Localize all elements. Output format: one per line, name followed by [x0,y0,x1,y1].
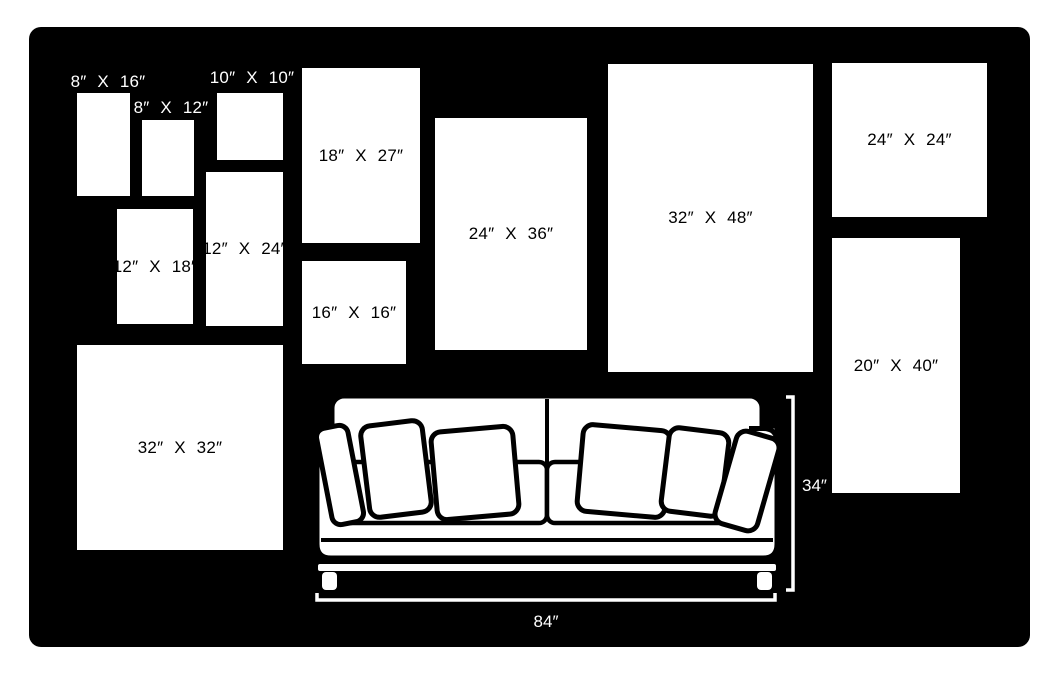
frame-8x12 [142,120,194,196]
frame-label-10x10: 10″ X 10″ [187,68,317,88]
height-dimension-bracket [786,397,793,590]
frame-8x16 [77,93,130,196]
frame-label-16x16: 16″ X 16″ [312,303,396,323]
frame-32x48: 32″ X 48″ [608,64,813,372]
width-dimension-bracket [317,593,775,600]
frame-12x18: 12″ X 18″ [117,209,193,324]
frame-label-18x27: 18″ X 27″ [319,146,403,166]
sofa-width-label: 84″ [534,612,559,631]
sofa-height-label: 34″ [802,476,827,495]
frame-label-32x48: 32″ X 48″ [668,208,752,228]
pillow-3 [430,426,519,521]
pillow-4 [576,424,671,518]
frame-label-32x32: 32″ X 32″ [138,438,222,458]
frame-32x32: 32″ X 32″ [77,345,283,550]
sofa-base-bar [318,564,776,571]
frame-label-12x24: 12″ X 24″ [202,239,286,259]
frame-10x10 [217,93,283,160]
frame-24x36: 24″ X 36″ [435,118,587,350]
frame-18x27: 18″ X 27″ [302,68,420,243]
frame-label-12x18: 12″ X 18″ [113,257,197,277]
sofa-leg-right [757,572,772,590]
frame-label-20x40: 20″ X 40″ [854,356,938,376]
frame-24x24: 24″ X 24″ [832,63,987,217]
frame-16x16: 16″ X 16″ [302,261,406,364]
sofa-leg-left [322,572,337,590]
frame-20x40: 20″ X 40″ [832,238,960,493]
wall-art-size-guide: 8″ X 16″ 8″ X 12″ 10″ X 10″ 12″ X 18″ 12… [0,0,1059,677]
frame-label-24x36: 24″ X 36″ [469,224,553,244]
frame-label-8x16: 8″ X 16″ [43,72,173,92]
pillow-2 [360,420,433,519]
sofa-diagram: 34″ 84″ [300,390,850,645]
frame-label-24x24: 24″ X 24″ [867,130,951,150]
frame-12x24: 12″ X 24″ [206,172,283,326]
